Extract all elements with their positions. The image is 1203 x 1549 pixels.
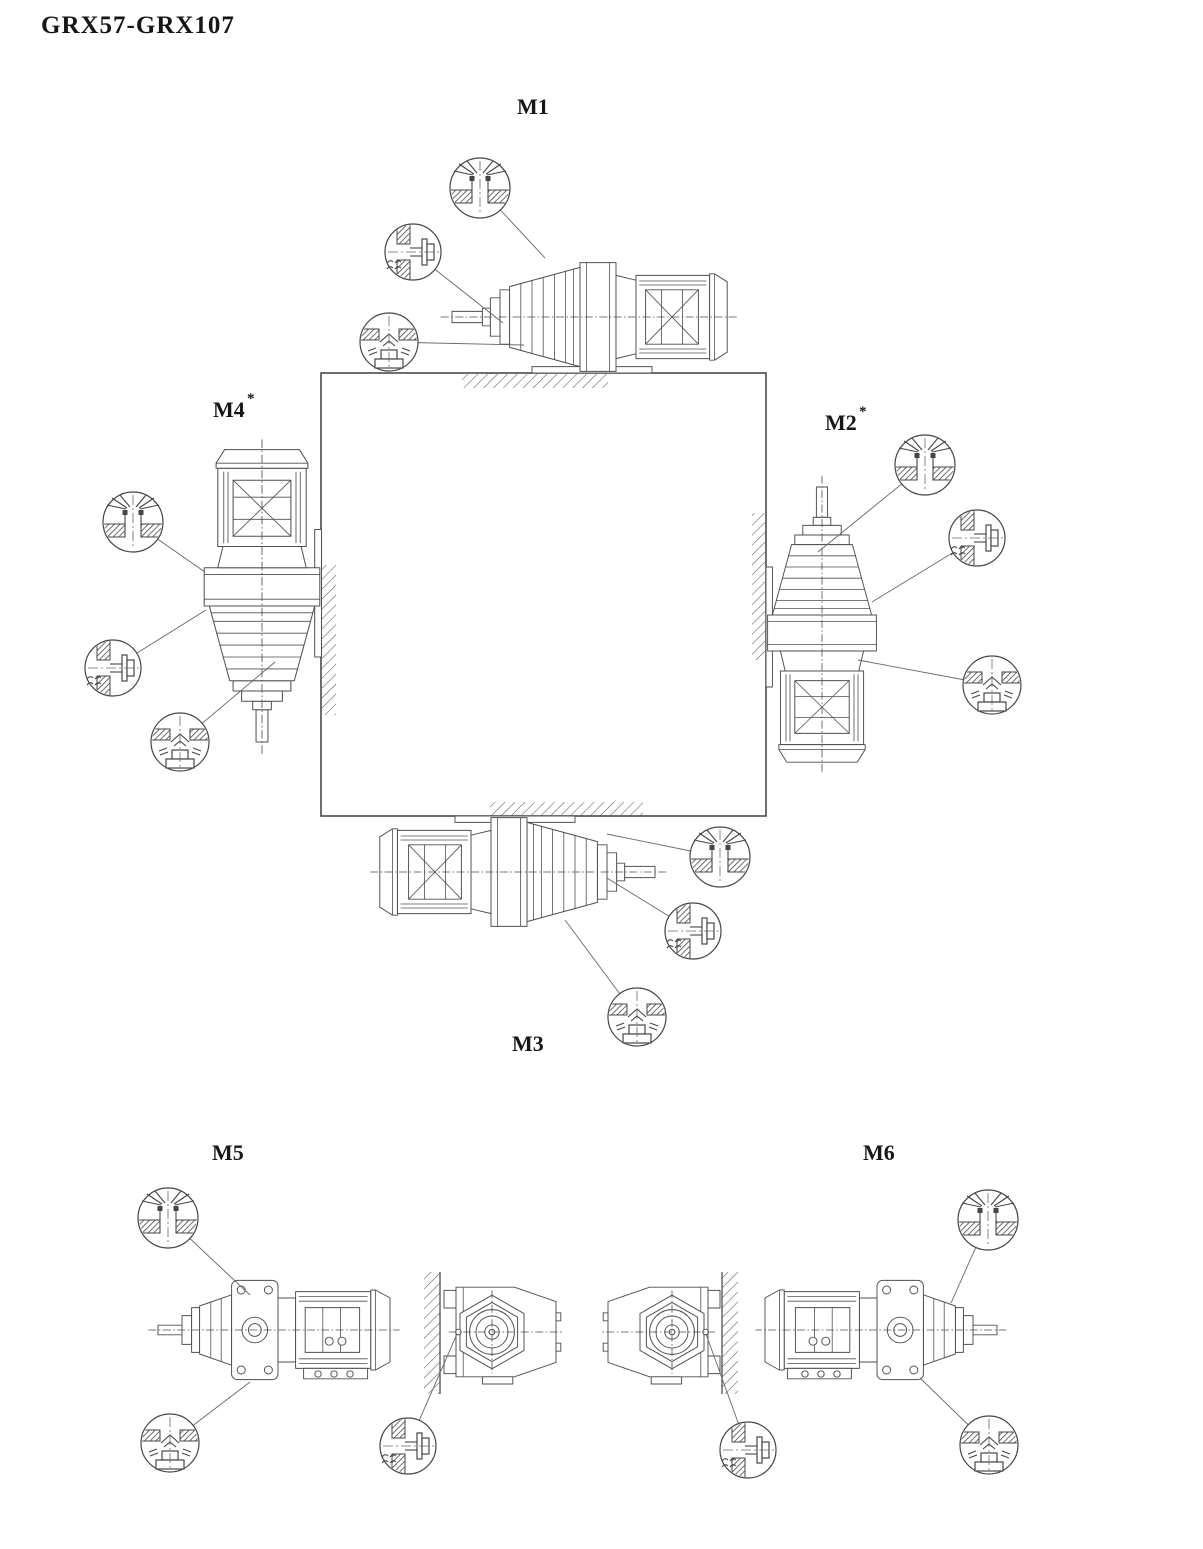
ceiling-hatch-m3 — [490, 802, 643, 816]
oil-drain-plug-icon-m4 — [151, 713, 209, 771]
label-m4-asterisk: * — [247, 391, 255, 407]
gearmotor-m5-plan-view — [148, 1280, 399, 1379]
wall-m5 — [424, 1272, 440, 1394]
oil-level-plug-icon-m5 — [380, 1418, 436, 1474]
oil-drain-plug-icon-m5 — [141, 1414, 199, 1472]
label-m2: M2 — [825, 410, 857, 435]
page-title: GRX57-GRX107 — [41, 12, 235, 39]
oil-drain-plug-icon-m1 — [360, 313, 418, 371]
diagram-canvas: GRX57-GRX107 — [0, 0, 1203, 1549]
breather-plug-icon-m2 — [895, 435, 955, 495]
breather-plug-icon-m6 — [958, 1190, 1018, 1250]
label-m6: M6 — [863, 1140, 895, 1165]
oil-level-plug-icon-m1 — [385, 224, 441, 280]
oil-drain-plug-icon-m2 — [963, 656, 1021, 714]
gearmotor-m6-plan-view — [755, 1280, 1006, 1379]
breather-plug-icon-m3 — [690, 827, 750, 887]
wall-hatch-m4 — [322, 565, 336, 715]
oil-level-plug-icon-m6 — [720, 1422, 776, 1478]
gearmotor-m6-end-view — [600, 1287, 720, 1384]
label-m4: M4 — [213, 397, 245, 422]
label-m3: M3 — [512, 1031, 544, 1056]
floor-hatch-m1 — [462, 374, 608, 388]
gearmotor-m5-end-view — [444, 1287, 564, 1384]
label-m2-asterisk: * — [859, 404, 867, 420]
label-m5: M5 — [212, 1140, 244, 1165]
gearmotor-m3-side-view — [370, 816, 666, 926]
gearmotor-m2-side-view — [766, 476, 876, 772]
mounting-reference-box — [321, 373, 766, 816]
breather-plug-icon-m5 — [138, 1188, 198, 1248]
mounting-positions-diagram: GRX57-GRX107 — [0, 0, 1203, 1549]
wall-hatch-m2 — [752, 513, 765, 660]
gearmotor-m1-side-view — [441, 263, 737, 373]
wall-m6 — [722, 1272, 738, 1394]
breather-plug-icon-m4 — [103, 492, 163, 552]
oil-drain-plug-icon-m3 — [608, 988, 666, 1046]
oil-level-plug-icon-m2 — [949, 510, 1005, 566]
breather-plug-icon-m1 — [450, 158, 510, 218]
label-m1: M1 — [517, 94, 549, 119]
oil-level-plug-icon-m4 — [85, 640, 141, 696]
oil-level-plug-icon-m3 — [665, 903, 721, 959]
oil-drain-plug-icon-m6 — [960, 1416, 1018, 1474]
